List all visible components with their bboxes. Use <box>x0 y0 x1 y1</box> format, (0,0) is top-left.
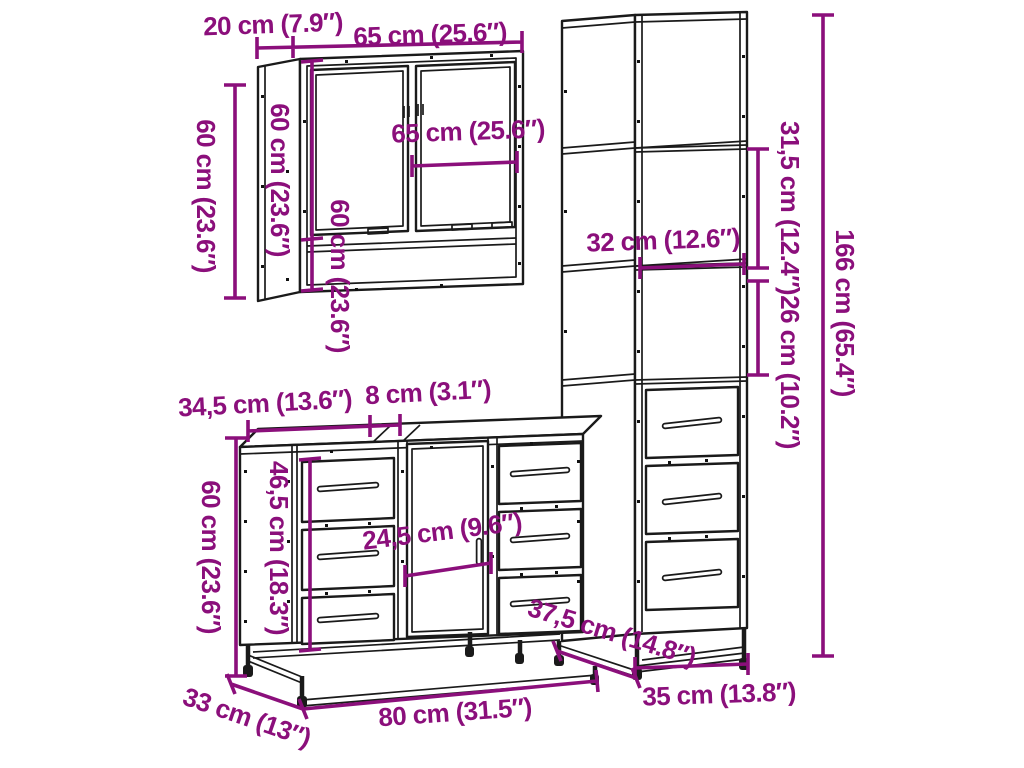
vanity-top-left-label: 34,5 cm (13.6″) <box>177 383 352 422</box>
tall-width-label: 35 cm (13.8″) <box>642 676 796 711</box>
diagram-canvas: 20 cm (7.9″) 65 cm (25.6″) 60 cm (23.6″)… <box>0 0 1024 768</box>
vanity-depth-label: 33 cm (13″) <box>179 681 315 753</box>
mirror-cabinet-art <box>258 51 523 301</box>
mirror-side-height-label: 60 cm (23.6″) <box>265 103 295 257</box>
vanity-inner-height-label: 46,5 cm (18.3″) <box>264 461 294 635</box>
mirror-inner-height-label: 60 cm (23.6″) <box>325 199 355 353</box>
tall-height-label: 166 cm (65.4″) <box>830 229 860 396</box>
mirror-width-label: 65 cm (25.6″) <box>353 16 507 51</box>
tall-shelf-width-label: 32 cm (12.6″) <box>586 222 740 257</box>
vanity-height-label: 60 cm (23.6″) <box>196 480 226 634</box>
mirror-inner-width-label: 65 cm (25.6″) <box>391 113 545 148</box>
tall-upper-compartment-label: 31,5 cm (12.4″) <box>775 121 805 295</box>
dimension-diagram: 20 cm (7.9″) 65 cm (25.6″) 60 cm (23.6″)… <box>0 0 1024 768</box>
mirror-height-label: 60 cm (23.6″) <box>191 119 221 273</box>
mirror-depth-label: 20 cm (7.9″) <box>203 7 344 42</box>
tall-lower-compartment-label: 26 cm (10.2″) <box>775 295 805 449</box>
vanity-top-gap-label: 8 cm (3.1″) <box>364 374 491 411</box>
